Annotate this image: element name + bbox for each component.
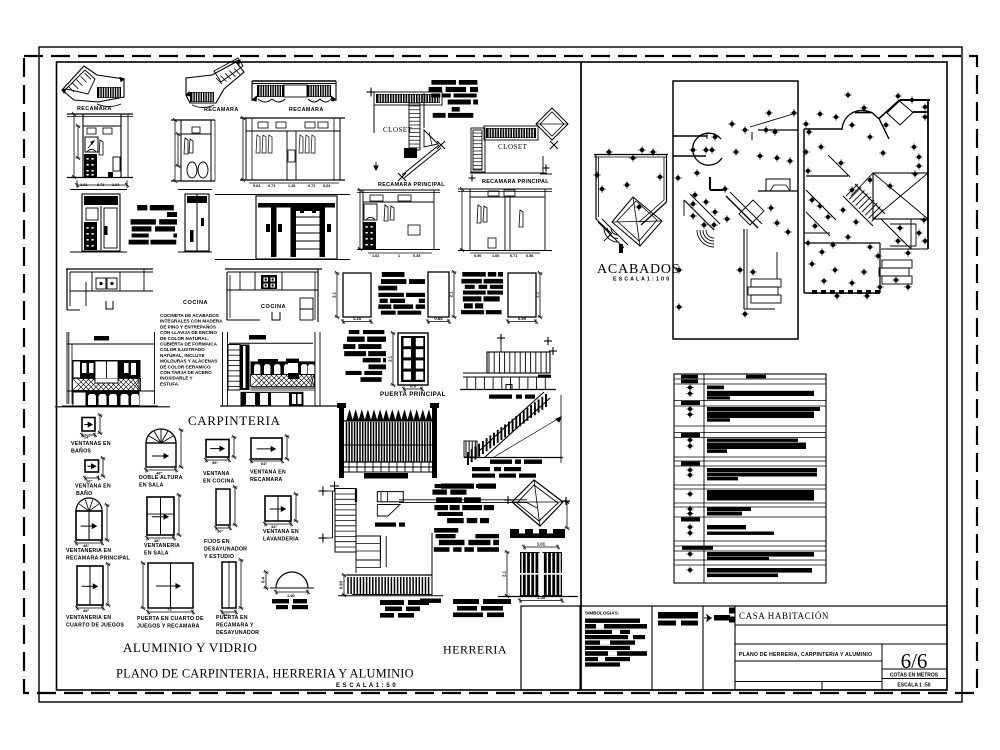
svg-text:CLOSET: CLOSET [498, 143, 528, 151]
svg-text:COCINA: COCINA [183, 300, 208, 306]
svg-text:0.64: 0.64 [323, 184, 331, 188]
svg-text:EN SALA: EN SALA [139, 483, 164, 489]
svg-text:COCINA: COCINA [261, 304, 286, 310]
svg-text:JUEGOS Y RECAMARA: JUEGOS Y RECAMARA [137, 624, 200, 630]
svg-text:PUERTA PRINCIPAL: PUERTA PRINCIPAL [380, 391, 446, 398]
svg-text:0.4: 0.4 [261, 576, 266, 582]
svg-text:RECAMARA: RECAMARA [204, 107, 239, 113]
svg-text:0.64: 0.64 [253, 184, 261, 188]
svg-text:2.1: 2.1 [449, 291, 454, 297]
svg-text:24": 24" [84, 435, 90, 440]
svg-text:E S C A L A 1 : 1 0 0: E S C A L A 1 : 1 0 0 [613, 277, 670, 283]
svg-text:1.90: 1.90 [287, 593, 296, 598]
svg-text:RECAMARA: RECAMARA [77, 106, 112, 112]
svg-text:0.84: 0.84 [434, 316, 443, 321]
svg-text:E S C A L A 1 : 5 0: E S C A L A 1 : 5 0 [336, 683, 396, 689]
svg-text:INTEGRALES CON MADERA: INTEGRALES CON MADERA [160, 319, 223, 324]
svg-text:0.56: 0.56 [526, 254, 533, 258]
svg-text:NATURAL, INCLUYE: NATURAL, INCLUYE [160, 353, 205, 358]
svg-text:1.01: 1.01 [537, 542, 546, 547]
svg-text:0.71: 0.71 [268, 184, 275, 188]
svg-text:0.50: 0.50 [474, 254, 481, 258]
svg-text:0.93: 0.93 [339, 580, 344, 589]
svg-text:RECAMARA: RECAMARA [289, 107, 324, 113]
svg-text:COTAS EN METROS: COTAS EN METROS [890, 673, 939, 679]
svg-text:CLOSET: CLOSET [383, 126, 413, 134]
svg-text:1.24: 1.24 [112, 183, 120, 187]
svg-text:COCINETA DE ACABADOS: COCINETA DE ACABADOS [160, 313, 219, 318]
svg-text:DE COLOR CERAMICO: DE COLOR CERAMICO [160, 364, 211, 369]
svg-text:0.90: 0.90 [518, 316, 527, 321]
svg-text:VENTANA EN: VENTANA EN [263, 529, 299, 535]
svg-text:DESAYUNADOR: DESAYUNADOR [216, 630, 259, 636]
svg-text:36": 36" [212, 460, 218, 465]
svg-text:INOXIDABLE Y: INOXIDABLE Y [160, 376, 193, 381]
svg-text:1: 1 [398, 254, 400, 258]
svg-text:FIJOS EN: FIJOS EN [204, 539, 230, 545]
svg-text:0.72: 0.72 [308, 184, 315, 188]
svg-text:36": 36" [217, 529, 223, 534]
svg-text:2.1: 2.1 [332, 291, 337, 297]
svg-text:CUBIERTA DE FORMAICA: CUBIERTA DE FORMAICA [160, 342, 218, 347]
svg-text:2.1: 2.1 [388, 355, 393, 361]
svg-text:EN SALA: EN SALA [144, 551, 169, 557]
svg-text:LAVANDERIA: LAVANDERIA [263, 537, 299, 543]
svg-text:MOLDURAS Y ALACENAS: MOLDURAS Y ALACENAS [160, 359, 217, 364]
svg-text:0.71: 0.71 [510, 254, 517, 258]
svg-text:VENTANERIA EN: VENTANERIA EN [66, 615, 111, 621]
svg-text:PUERTA EN CUARTO DE: PUERTA EN CUARTO DE [137, 616, 204, 622]
svg-text:VENTANA EN: VENTANA EN [250, 470, 286, 476]
svg-text:CUARTO DE JUEGOS: CUARTO DE JUEGOS [66, 623, 124, 629]
svg-text:1.15: 1.15 [353, 316, 362, 321]
svg-text:PUERTA EN: PUERTA EN [216, 615, 248, 621]
svg-text:2.1: 2.1 [535, 291, 540, 297]
svg-text:ACABADOS: ACABADOS [597, 262, 680, 277]
svg-text:BAÑO: BAÑO [76, 490, 92, 497]
svg-text:CARPINTERIA: CARPINTERIA [188, 413, 281, 428]
svg-text:COLOR ILUSTRADO: COLOR ILUSTRADO [160, 347, 205, 352]
svg-text:VENTANA EN: VENTANA EN [75, 484, 111, 490]
svg-text:RECAMARA PRINCIPAL: RECAMARA PRINCIPAL [66, 556, 130, 562]
svg-text:0.71: 0.71 [97, 183, 104, 187]
svg-text:BAÑOS: BAÑOS [71, 448, 91, 455]
svg-text:1.62: 1.62 [372, 254, 379, 258]
svg-text:DOBLE ALTURA: DOBLE ALTURA [139, 475, 183, 481]
svg-text:DESAYUNADOR: DESAYUNADOR [204, 547, 247, 553]
svg-text:6/6: 6/6 [901, 649, 928, 673]
svg-text:ESTUFA.: ESTUFA. [160, 381, 179, 386]
svg-text:CASA HABITACIÓN: CASA HABITACIÓN [739, 611, 829, 621]
svg-text:VENTANERIA EN: VENTANERIA EN [66, 548, 111, 554]
svg-text:48": 48" [83, 608, 89, 613]
svg-text:72": 72" [167, 607, 174, 612]
svg-text:CON LLAVIJA DE ENCINO: CON LLAVIJA DE ENCINO [160, 330, 217, 335]
svg-text:64": 64" [261, 461, 267, 466]
svg-text:2.1: 2.1 [502, 570, 507, 576]
svg-text:1.62: 1.62 [80, 183, 87, 187]
svg-text:PLANO DE CARPINTERIA, HERRERIA: PLANO DE CARPINTERIA, HERRERIA Y ALUMINI… [116, 667, 414, 681]
svg-text:RECAMARA Y: RECAMARA Y [216, 623, 254, 629]
svg-text:SIMBOLOGIAS:: SIMBOLOGIAS: [585, 611, 620, 616]
svg-text:DE COLOR NATURAL.: DE COLOR NATURAL. [160, 336, 209, 341]
svg-text:EN COCINA: EN COCINA [203, 479, 235, 485]
svg-text:1.05: 1.05 [537, 595, 546, 600]
svg-text:VENTANAS EN: VENTANAS EN [71, 441, 111, 447]
svg-text:RECAMARA: RECAMARA [250, 477, 283, 483]
svg-text:0.9: 0.9 [410, 384, 416, 389]
svg-text:1.66: 1.66 [492, 254, 499, 258]
svg-text:VENTANERIA: VENTANERIA [144, 543, 180, 549]
svg-text:RECAMARA PRINCIPAL: RECAMARA PRINCIPAL [482, 179, 549, 185]
svg-text:CON TARJA DE ACERO: CON TARJA DE ACERO [160, 370, 212, 375]
svg-text:ESCALA 1 :50: ESCALA 1 :50 [897, 683, 930, 689]
svg-text:DE PINO Y ENTREPAÑOS: DE PINO Y ENTREPAÑOS [160, 323, 216, 329]
svg-text:0.45: 0.45 [413, 254, 420, 258]
svg-text:ALUMINIO Y VIDRIO: ALUMINIO Y VIDRIO [123, 640, 257, 655]
svg-text:RECAMARA PRINCIPAL: RECAMARA PRINCIPAL [378, 182, 445, 188]
svg-text:Y ESTUDIO: Y ESTUDIO [204, 554, 234, 560]
svg-text:PLANO DE HERRERIA, CARPINTERIA: PLANO DE HERRERIA, CARPINTERIA Y ALUMINI… [739, 652, 872, 658]
svg-text:VENTANA: VENTANA [203, 471, 230, 477]
svg-text:HERRERIA: HERRERIA [443, 643, 507, 657]
svg-text:1.15: 1.15 [288, 184, 295, 188]
